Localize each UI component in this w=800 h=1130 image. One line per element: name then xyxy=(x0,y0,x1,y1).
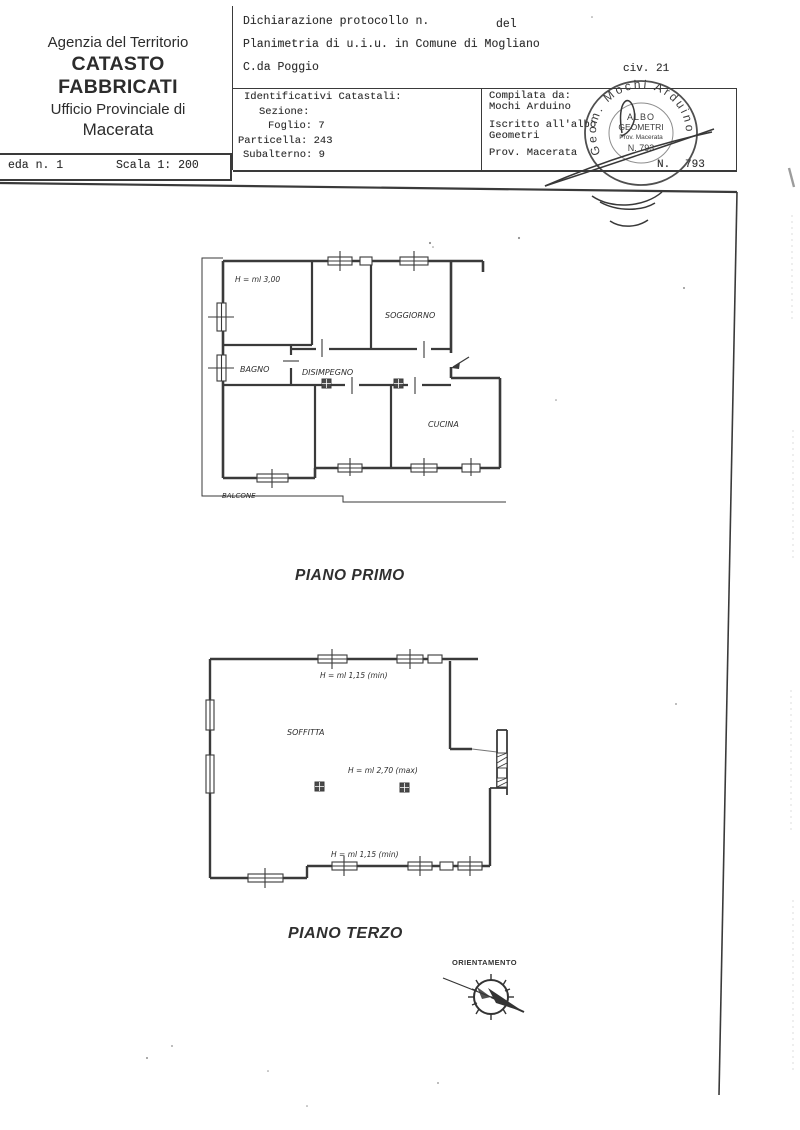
address-line: C.da Poggio xyxy=(243,61,319,74)
room-label-soffitta: SOFFITTA xyxy=(287,728,324,737)
plan2-annex-connector xyxy=(472,749,497,752)
plan2-height-bottom: H = ml 1,15 (min) xyxy=(331,850,399,859)
protocol-line: Dichiarazione protocollo n. xyxy=(243,15,429,28)
scan-edge-mark xyxy=(789,168,794,187)
surveyor-stamp: Geom. Mochi Arduino ALBO GEOMETRI Prov. … xyxy=(535,70,725,230)
plan2-height-top: H = ml 1,15 (min) xyxy=(320,671,388,680)
plan2-annex-hatched-windows xyxy=(497,753,507,787)
cadastral-particella: Particella: 243 xyxy=(238,135,333,147)
right-border-rule xyxy=(719,192,737,1095)
scale-label: Scala 1: 200 xyxy=(116,159,199,172)
province-name: Macerata xyxy=(20,120,216,140)
agency-header: Agenzia del Territorio CATASTO FABBRICAT… xyxy=(20,34,216,140)
piano-terzo-floorplan: H = ml 1,15 (min) SOFFITTA H = ml 2,70 (… xyxy=(200,645,515,890)
agency-name: Agenzia del Territorio xyxy=(20,34,216,51)
stamp-province: Prov. Macerata xyxy=(619,134,663,141)
scan-noise-right-edge xyxy=(791,215,793,1070)
protocol-del: del xyxy=(496,18,517,31)
room-label-disimpegno: DISIMPEGNO xyxy=(302,368,353,377)
piano-primo-caption: PIANO PRIMO xyxy=(295,567,405,585)
stamp-geometri: GEOMETRI xyxy=(618,122,663,132)
plan2-flue-symbols xyxy=(315,782,409,792)
cadastral-title: Identificativi Catastali: xyxy=(244,91,402,103)
office-line: Ufficio Provinciale di xyxy=(20,101,216,118)
cadastral-subalterno: Subalterno: 9 xyxy=(243,149,325,161)
compass-needle-head xyxy=(488,988,524,1012)
compiler-albo: Geometri xyxy=(489,130,539,142)
orientation-label: ORIENTAMENTO xyxy=(452,958,517,967)
room-label-soggiorno: SOGGIORNO xyxy=(385,311,435,320)
plan2-height-middle: H = ml 2,70 (max) xyxy=(348,766,418,775)
piano-primo-floorplan: H = ml 3,00 BAGNO DISIMPEGNO SOGGIORNO C… xyxy=(195,245,525,510)
planimetria-line: Planimetria di u.i.u. in Comune di Mogli… xyxy=(243,38,540,51)
sheet-number: eda n. 1 xyxy=(8,159,63,172)
piano-terzo-caption: PIANO TERZO xyxy=(288,925,403,943)
room-label-balcone: BALCONE xyxy=(222,492,256,500)
sheet-scale-box: eda n. 1 Scala 1: 200 xyxy=(0,153,232,181)
room-label-bagno: BAGNO xyxy=(240,365,269,374)
stamp-albo: ALBO xyxy=(627,112,655,122)
cadastral-ids-cell: Identificativi Catastali: Sezione: Fogli… xyxy=(233,88,482,170)
cadastral-document-page: Agenzia del Territorio CATASTO FABBRICAT… xyxy=(0,0,800,1130)
cadastral-foglio: Foglio: 7 xyxy=(268,120,325,132)
cadastral-sezione: Sezione: xyxy=(259,106,309,118)
compass-rose xyxy=(430,968,540,1026)
plan1-height-note: H = ml 3,00 xyxy=(235,275,280,284)
room-label-cucina: CUCINA xyxy=(428,420,459,429)
register-title: CATASTO FABBRICATI xyxy=(20,53,216,98)
